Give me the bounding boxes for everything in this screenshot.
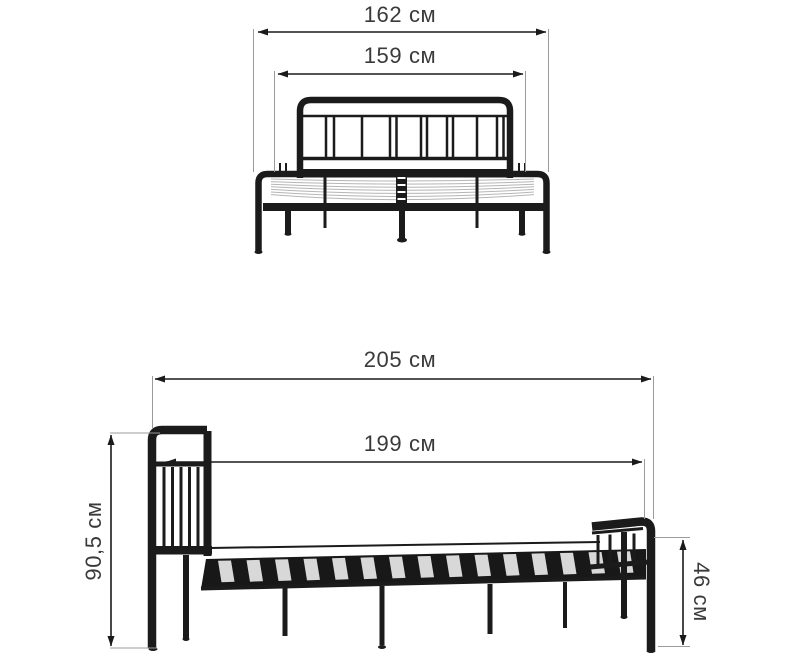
bed-drawings-svg bbox=[0, 0, 800, 670]
dim-label-footboard-height: 46 см bbox=[690, 562, 712, 622]
dimension-diagram: 162 см 159 см 205 см 199 см 90,5 см 46 с… bbox=[0, 0, 800, 670]
headboard-slats bbox=[326, 117, 504, 157]
dim-label-headboard-height: 90,5 см bbox=[83, 501, 105, 580]
dim-label-inner-length: 199 см bbox=[364, 433, 437, 455]
dim-label-overall-width: 162 см bbox=[364, 4, 437, 26]
bed-side-view bbox=[149, 430, 656, 653]
bed-front-view bbox=[255, 100, 551, 254]
headboard-side-slats bbox=[164, 467, 198, 546]
dim-label-overall-length: 205 см bbox=[364, 349, 437, 371]
dim-label-inner-width: 159 см bbox=[364, 45, 437, 67]
